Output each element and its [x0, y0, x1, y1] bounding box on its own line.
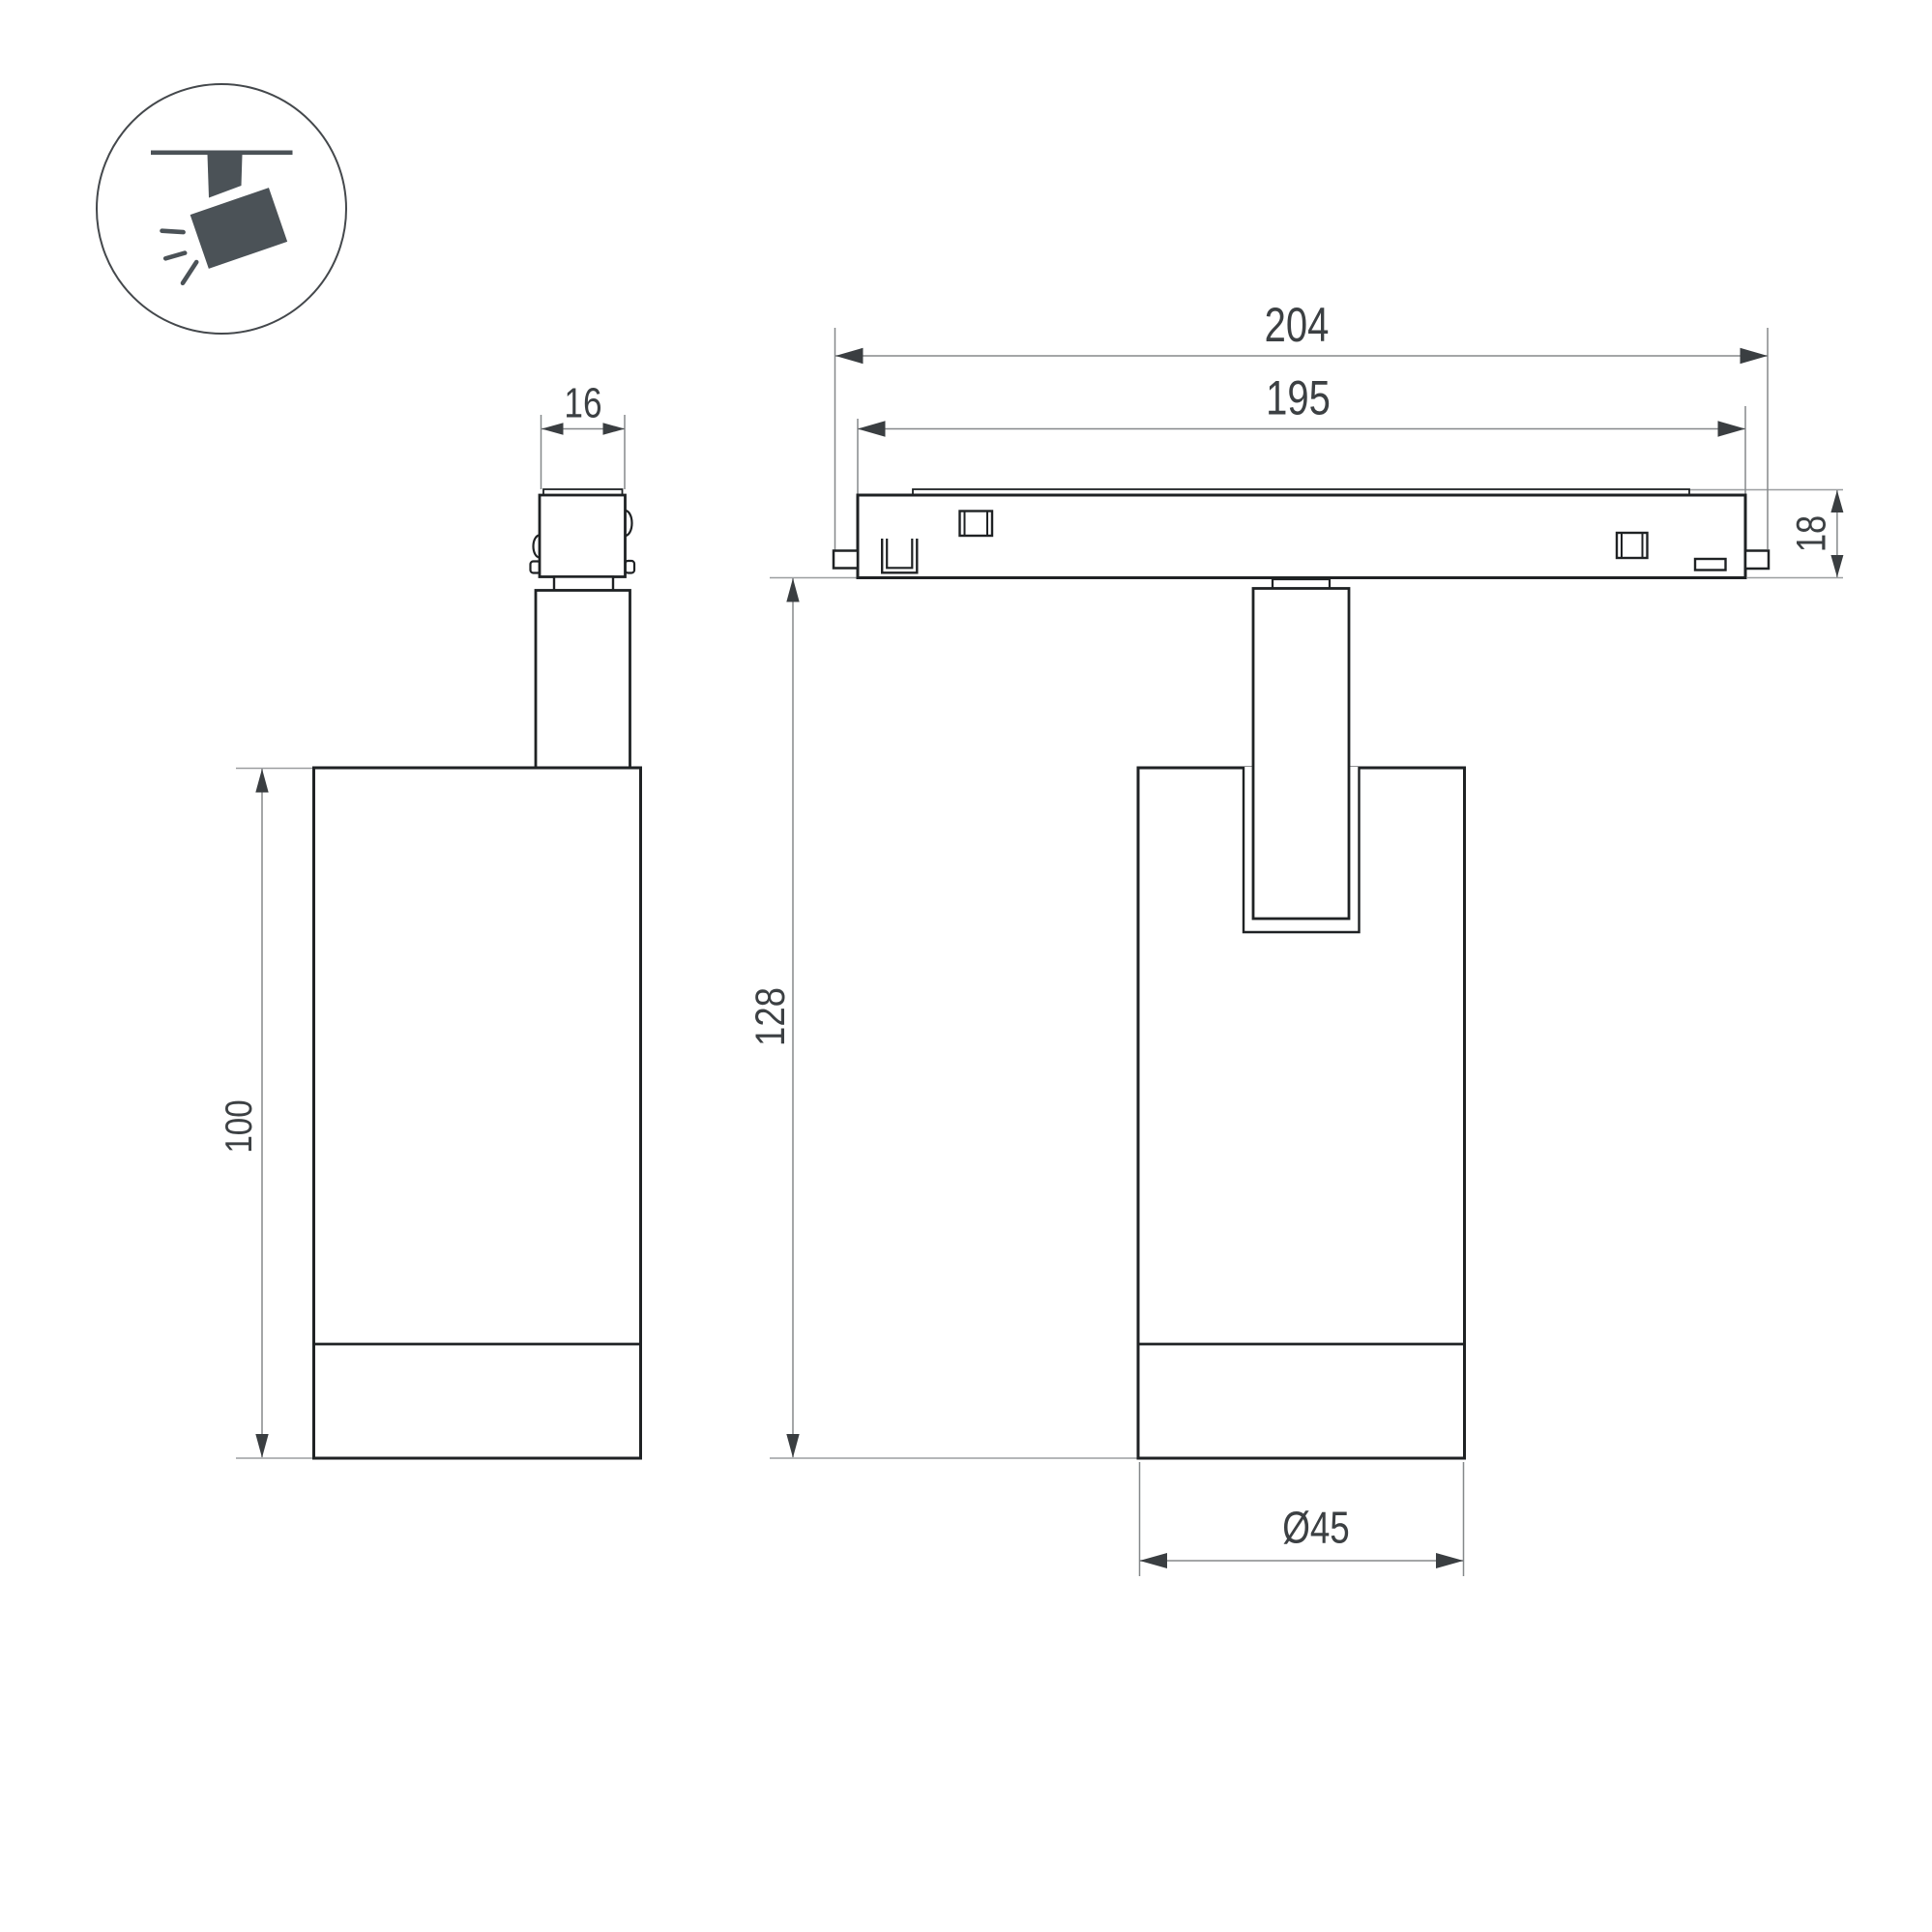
- svg-text:100: 100: [217, 1099, 259, 1153]
- svg-text:195: 195: [1266, 370, 1331, 424]
- svg-text:Ø45: Ø45: [1282, 1503, 1350, 1553]
- svg-text:16: 16: [564, 380, 601, 427]
- svg-text:18: 18: [1789, 515, 1834, 552]
- svg-text:128: 128: [747, 987, 793, 1046]
- svg-text:204: 204: [1265, 298, 1330, 352]
